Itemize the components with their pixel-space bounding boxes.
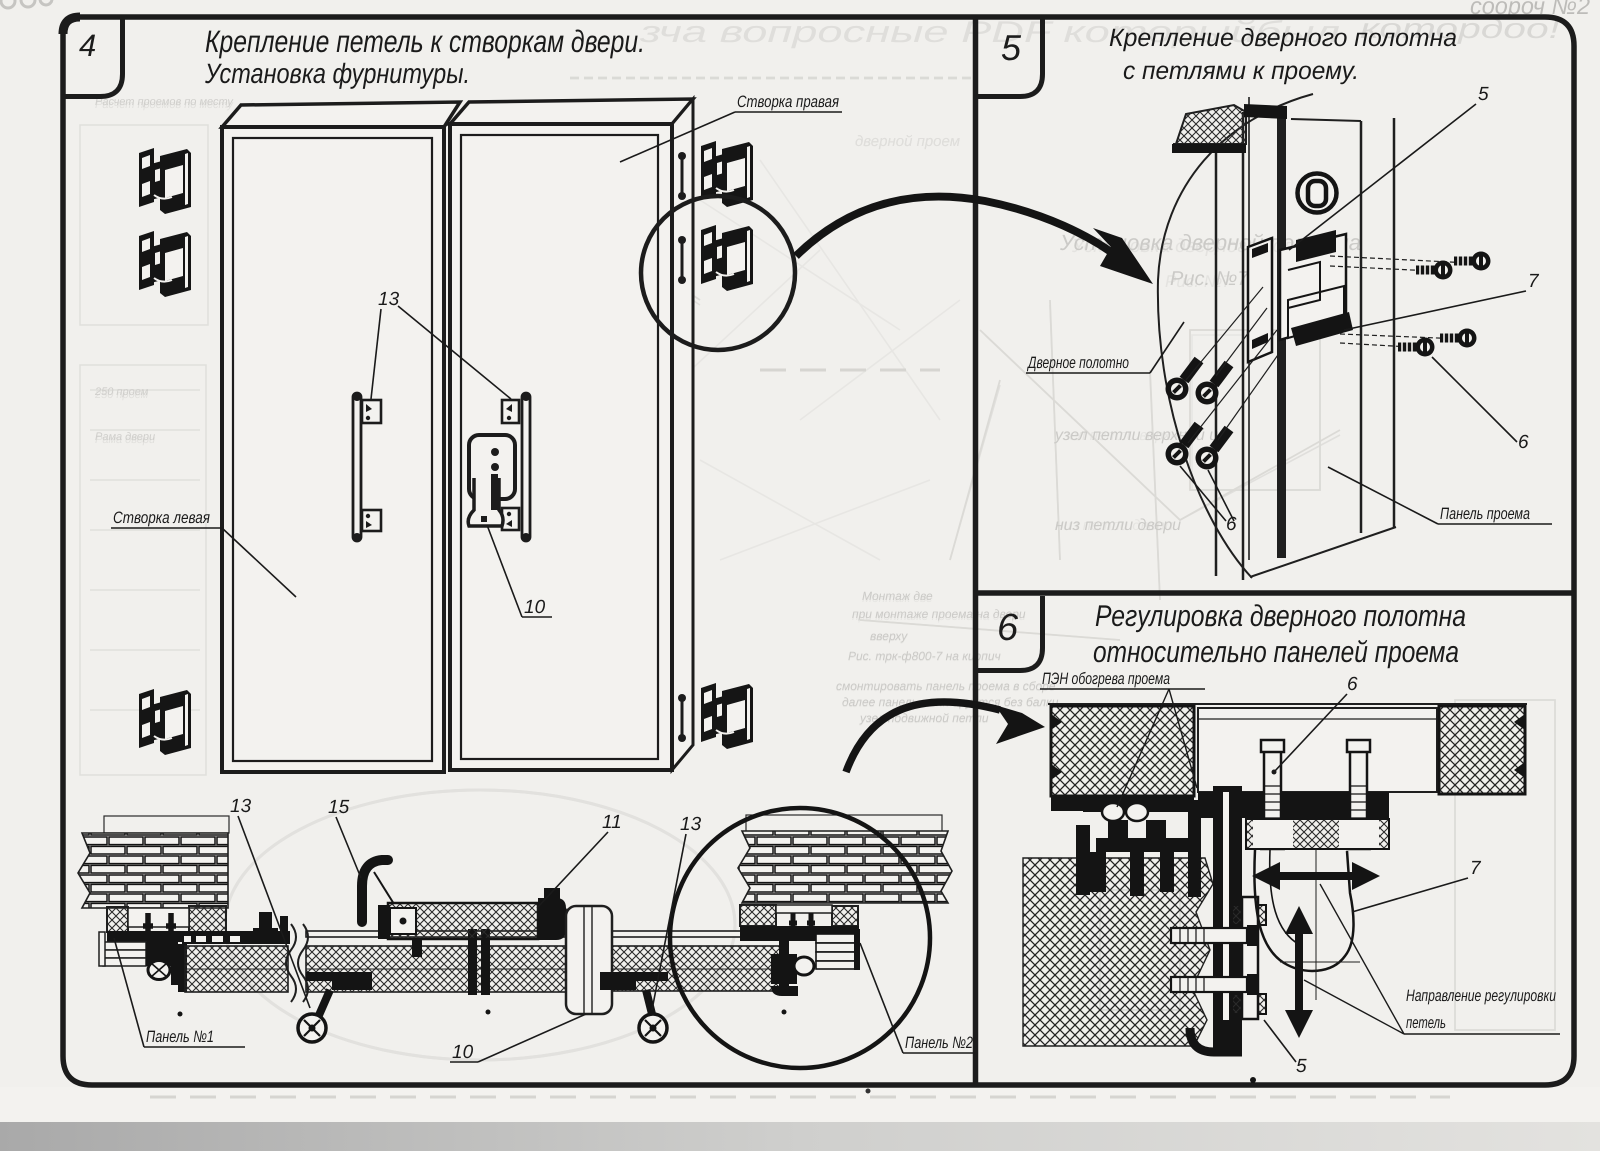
svg-text:11: 11 [602,812,622,833]
svg-text:13: 13 [378,289,400,310]
svg-text:6: 6 [997,607,1019,649]
svg-text:13: 13 [230,796,252,817]
svg-text:Крепление дверного полотна: Крепление дверного полотна [1109,24,1457,52]
svg-text:ПЭН обогрева проема: ПЭН обогрева проема [1042,670,1170,688]
svg-text:Створка правая: Створка правая [737,93,839,111]
svg-text:смонтировать панель проема в с: смонтировать панель проема в сборе [836,679,1056,693]
svg-text:Панель №2: Панель №2 [905,1034,973,1052]
svg-text:6: 6 [1518,432,1529,453]
svg-text:15: 15 [328,797,350,818]
svg-text:Створка левая: Створка левая [113,509,210,527]
svg-text:10: 10 [452,1042,474,1063]
svg-text:Рама двери: Рама двери [95,431,155,443]
svg-text:250 проем: 250 проем [94,386,149,398]
svg-text:Расчет проемов по месту: Расчет проемов по месту [95,96,234,108]
svg-text:вверху: вверху [870,629,908,643]
svg-text:5: 5 [1478,84,1489,105]
svg-text:Крепление петель к створкам дв: Крепление петель к створкам двери. [205,24,645,59]
svg-text:Установка фурнитуры.: Установка фурнитуры. [204,58,470,89]
svg-text:петель: петель [1406,1014,1446,1032]
svg-text:7: 7 [1528,271,1540,292]
svg-text:с петлями к проему.: с петлями к проему. [1123,57,1359,85]
svg-text:Монтаж две: Монтаж две [862,589,933,603]
svg-text:Панель №1: Панель №1 [146,1028,214,1046]
svg-text:4: 4 [79,28,96,63]
svg-text:Направление регулировки: Направление регулировки [1406,987,1556,1005]
svg-text:7: 7 [1470,858,1482,879]
svg-text:6: 6 [1347,674,1358,695]
svg-text:низ петли двери: низ петли двери [1055,517,1181,534]
svg-text:Панель проема: Панель проема [1440,505,1530,523]
svg-text:Рис. №7: Рис. №7 [1170,268,1249,290]
svg-text:10: 10 [524,597,546,618]
svg-text:Дверное полотно: Дверное полотно [1027,354,1129,372]
svg-text:дверной проем: дверной проем [855,133,960,150]
svg-text:13: 13 [680,814,702,835]
svg-text:5: 5 [1001,27,1022,68]
svg-text:относительно панелей проема: относительно панелей проема [1093,636,1459,669]
svg-text:Регулировка дверного полотна: Регулировка дверного полотна [1095,600,1466,633]
svg-text:5: 5 [1296,1056,1307,1077]
